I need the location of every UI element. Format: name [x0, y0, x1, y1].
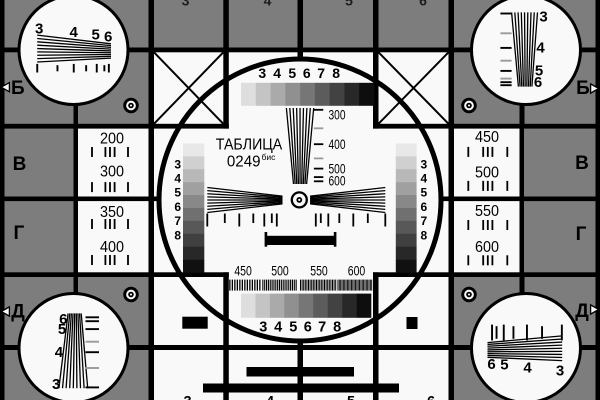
- svg-text:8: 8: [333, 319, 341, 335]
- svg-text:6: 6: [419, 0, 427, 9]
- svg-text:3: 3: [556, 362, 564, 379]
- svg-text:4: 4: [70, 24, 79, 41]
- svg-text:7: 7: [174, 214, 181, 228]
- svg-text:4: 4: [55, 344, 64, 361]
- svg-text:600: 600: [475, 239, 499, 256]
- svg-text:400: 400: [329, 137, 346, 152]
- svg-text:4: 4: [523, 359, 532, 376]
- svg-text:5: 5: [174, 186, 181, 200]
- svg-text:600: 600: [348, 263, 366, 278]
- svg-text:В: В: [575, 153, 589, 174]
- svg-text:7: 7: [318, 319, 326, 335]
- svg-text:550: 550: [310, 263, 328, 278]
- svg-text:4: 4: [174, 172, 181, 186]
- svg-text:4: 4: [274, 319, 282, 335]
- svg-text:5: 5: [289, 319, 297, 335]
- svg-text:550: 550: [475, 203, 499, 220]
- svg-text:3: 3: [52, 376, 60, 393]
- svg-text:4: 4: [536, 40, 545, 57]
- svg-text:3: 3: [174, 157, 181, 171]
- svg-text:500: 500: [475, 165, 499, 182]
- svg-text:Г: Г: [576, 224, 587, 245]
- svg-text:6: 6: [487, 356, 495, 373]
- svg-text:Б: Б: [576, 78, 590, 99]
- svg-text:8: 8: [421, 228, 428, 242]
- svg-text:0249: 0249: [227, 153, 261, 170]
- svg-text:5: 5: [347, 394, 355, 400]
- svg-text:5: 5: [58, 321, 66, 338]
- svg-text:Б: Б: [11, 78, 25, 99]
- svg-text:Д: Д: [11, 302, 25, 323]
- svg-text:4: 4: [273, 65, 281, 81]
- svg-text:6: 6: [421, 200, 428, 214]
- svg-text:5: 5: [288, 65, 296, 81]
- svg-text:500: 500: [271, 263, 289, 278]
- svg-text:Д: Д: [575, 301, 589, 322]
- svg-text:ТАБЛИЦА: ТАБЛИЦА: [216, 137, 283, 154]
- svg-text:600: 600: [329, 174, 346, 189]
- svg-text:5: 5: [500, 357, 508, 374]
- svg-text:200: 200: [100, 131, 124, 148]
- svg-text:3: 3: [183, 394, 191, 400]
- svg-text:450: 450: [234, 263, 252, 278]
- svg-text:3: 3: [35, 20, 43, 37]
- svg-text:400: 400: [100, 239, 124, 256]
- svg-text:6: 6: [303, 65, 311, 81]
- svg-text:350: 350: [100, 204, 124, 221]
- svg-text:5: 5: [345, 0, 353, 9]
- svg-text:7: 7: [421, 214, 428, 228]
- svg-text:6: 6: [534, 74, 542, 91]
- svg-text:3: 3: [259, 319, 267, 335]
- svg-text:4: 4: [421, 172, 428, 186]
- svg-text:6: 6: [304, 319, 312, 335]
- svg-text:6: 6: [174, 200, 181, 214]
- svg-text:В: В: [13, 154, 27, 175]
- svg-text:300: 300: [100, 164, 124, 181]
- svg-text:3: 3: [539, 9, 547, 26]
- svg-text:8: 8: [174, 228, 181, 242]
- svg-text:5: 5: [421, 186, 428, 200]
- svg-text:бис: бис: [262, 152, 277, 162]
- svg-text:450: 450: [475, 129, 499, 146]
- svg-text:4: 4: [264, 0, 272, 9]
- svg-text:300: 300: [329, 108, 346, 123]
- svg-text:Г: Г: [14, 223, 25, 244]
- svg-text:6: 6: [427, 394, 435, 400]
- svg-text:5: 5: [92, 27, 100, 44]
- svg-text:7: 7: [317, 65, 325, 81]
- svg-text:4: 4: [266, 394, 274, 400]
- svg-text:3: 3: [421, 157, 428, 171]
- svg-text:3: 3: [182, 0, 190, 9]
- svg-text:6: 6: [104, 28, 112, 45]
- svg-text:3: 3: [258, 65, 266, 81]
- svg-text:8: 8: [332, 65, 340, 81]
